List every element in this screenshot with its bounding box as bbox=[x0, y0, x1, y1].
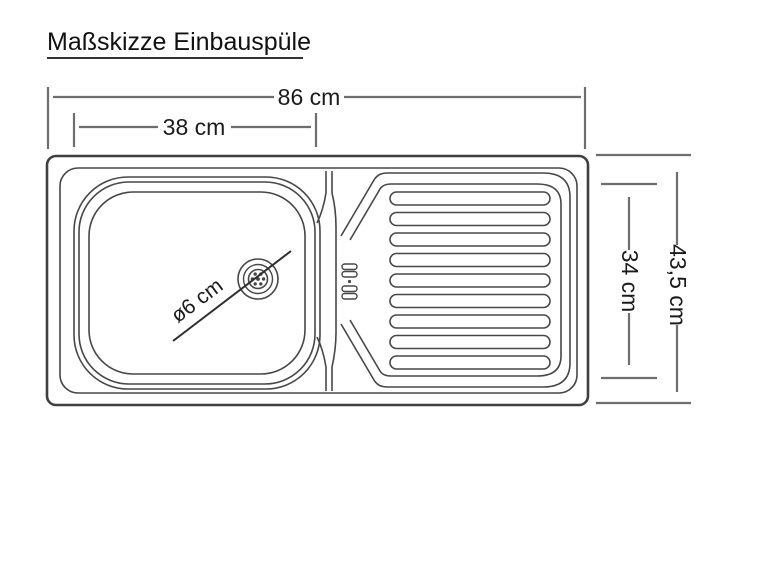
basin bbox=[74, 177, 320, 389]
drainer-slat bbox=[390, 254, 550, 267]
sink-drawing: ø6 cm bbox=[47, 156, 588, 405]
sink-rim bbox=[60, 168, 577, 393]
dim-label-inner-depth: 34 cm bbox=[617, 250, 643, 313]
drainer-slat bbox=[390, 295, 550, 308]
dim-label-drain-diameter: ø6 cm bbox=[167, 274, 227, 327]
measurement-sketch: Maßskizze Einbauspüle 86 cm 38 cm 43,5 c… bbox=[0, 0, 770, 578]
dim-label-overall-depth: 43,5 cm bbox=[665, 244, 691, 326]
basin-outline-mid bbox=[79, 182, 315, 384]
drainer-slat bbox=[390, 192, 550, 205]
drainer-slats bbox=[390, 192, 550, 369]
drainer-slat bbox=[390, 356, 550, 369]
dim-drain-diameter: ø6 cm bbox=[167, 251, 291, 341]
drainer-slat bbox=[390, 233, 550, 246]
drainer-slat bbox=[390, 213, 550, 226]
basin-outline-outer bbox=[74, 177, 320, 389]
dim-basin-width: 38 cm bbox=[74, 113, 316, 147]
dim-inner-depth: 34 cm bbox=[601, 184, 657, 378]
dim-label-overall-width: 86 cm bbox=[278, 84, 341, 110]
dim-label-basin-width: 38 cm bbox=[163, 114, 226, 140]
title-block: Maßskizze Einbauspüle bbox=[47, 28, 311, 58]
drainer-slat bbox=[390, 315, 550, 328]
drainer bbox=[341, 173, 570, 387]
page-title: Maßskizze Einbauspüle bbox=[47, 28, 311, 56]
sink-outer-edge bbox=[47, 156, 588, 405]
drainer-slat bbox=[390, 274, 550, 287]
drainer-slat bbox=[390, 336, 550, 349]
tap-hole-marks bbox=[342, 264, 357, 299]
